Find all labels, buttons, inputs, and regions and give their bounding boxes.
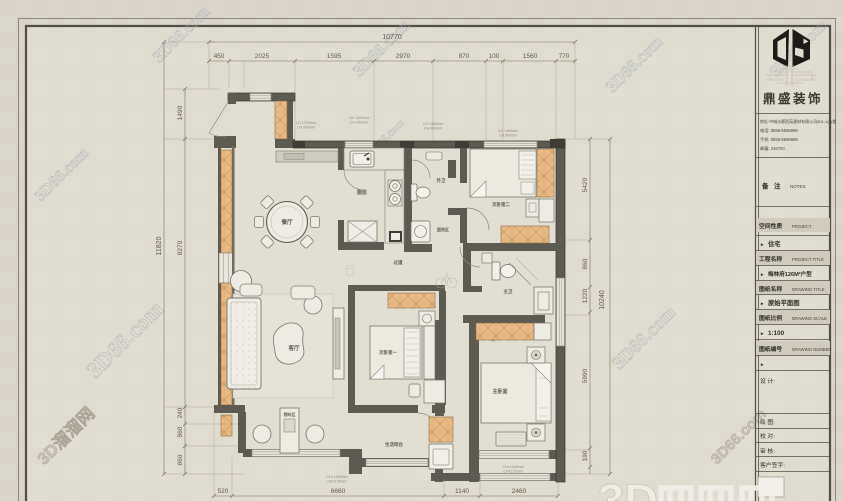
svg-text:空间性质: 空间性质 — [759, 222, 782, 230]
svg-text:主卧室: 主卧室 — [492, 388, 507, 395]
svg-text:►: ► — [760, 331, 764, 336]
svg-text:1560: 1560 — [523, 53, 538, 60]
svg-text:设 计:: 设 计: — [760, 377, 775, 385]
svg-text:CH 900mm: CH 900mm — [350, 121, 368, 125]
svg-text:次卧室一: 次卧室一 — [379, 349, 397, 356]
svg-text:CH=175mm: CH=175mm — [503, 470, 522, 474]
svg-text:450: 450 — [214, 53, 225, 60]
svg-text:3D: 3D — [598, 474, 658, 501]
svg-text:►: ► — [760, 301, 764, 306]
svg-text:240: 240 — [177, 407, 184, 418]
svg-text:CH 900mm: CH 900mm — [424, 127, 442, 131]
svg-text:NOTES: NOTES — [790, 184, 806, 189]
svg-text:手机: 0556-5556699: 手机: 0556-5556699 — [760, 136, 798, 143]
svg-text:CH 1400mm: CH 1400mm — [349, 116, 369, 120]
svg-text:860: 860 — [177, 454, 184, 465]
svg-text:外卫: 外卫 — [437, 177, 446, 184]
svg-text:审 核:: 审 核: — [760, 447, 775, 455]
svg-text:860: 860 — [582, 258, 589, 269]
svg-text:视听区: 视听区 — [284, 411, 296, 417]
svg-text:校 对:: 校 对: — [760, 432, 775, 440]
svg-text:CH=175mm: CH=175mm — [327, 480, 346, 484]
svg-text:PROJECT: PROJECT — [792, 224, 812, 229]
svg-text:11820: 11820 — [156, 236, 163, 255]
svg-text:2970: 2970 — [396, 53, 411, 60]
svg-text:原始平面图: 原始平面图 — [768, 298, 799, 307]
svg-text:►: ► — [760, 242, 764, 247]
svg-text:10240: 10240 — [599, 290, 606, 310]
svg-text:工程名称: 工程名称 — [759, 255, 782, 263]
svg-text:10770: 10770 — [382, 34, 402, 41]
svg-text:1:100: 1:100 — [768, 330, 785, 337]
svg-text:8270: 8270 — [177, 240, 184, 255]
svg-text:CH 900mm: CH 900mm — [297, 126, 315, 130]
svg-text:图纸名称: 图纸名称 — [759, 285, 782, 293]
svg-text:5420: 5420 — [582, 177, 589, 192]
svg-text:CH 1400mm: CH 1400mm — [498, 129, 518, 133]
svg-text:960: 960 — [177, 426, 184, 437]
svg-text:DRAWING SCALE: DRAWING SCALE — [792, 316, 827, 321]
svg-text:1490: 1490 — [177, 105, 184, 120]
svg-text:主卫: 主卫 — [504, 288, 513, 295]
svg-text:CH 900mm: CH 900mm — [499, 134, 517, 138]
svg-text:厨房: 厨房 — [357, 189, 367, 196]
svg-text:CH 1400mm: CH 1400mm — [423, 122, 443, 126]
svg-text:鼎盛装饰: 鼎盛装饰 — [763, 91, 823, 106]
svg-text:770: 770 — [559, 53, 570, 60]
svg-text:190: 190 — [582, 450, 589, 461]
svg-text:绘 图:: 绘 图: — [760, 418, 775, 426]
svg-text:餐厅: 餐厅 — [280, 218, 293, 226]
svg-text:梅林府126M²户型: 梅林府126M²户型 — [768, 270, 812, 278]
svg-text:盥洗区: 盥洗区 — [437, 226, 449, 232]
svg-text:5990: 5990 — [582, 368, 589, 383]
svg-text:过道: 过道 — [394, 259, 403, 266]
svg-text:电话: 0556-5556699: 电话: 0556-5556699 — [760, 127, 798, 134]
svg-text:PROJECT TITLE: PROJECT TITLE — [792, 257, 824, 262]
svg-text:DRAWING TITLE: DRAWING TITLE — [792, 287, 825, 292]
svg-text:次卧室二: 次卧室二 — [492, 201, 510, 208]
svg-text:图纸比例: 图纸比例 — [759, 314, 782, 322]
svg-text:LD 1700mm: LD 1700mm — [296, 121, 316, 125]
svg-text:客厅: 客厅 — [287, 344, 300, 352]
svg-text:520: 520 — [218, 488, 229, 495]
svg-text:地址:中城水郡西苑建材有限公司801-1(2)楼: 地址:中城水郡西苑建材有限公司801-1(2)楼 — [760, 118, 836, 124]
svg-text:CH=1440mm: CH=1440mm — [502, 465, 523, 469]
svg-text:2025: 2025 — [255, 53, 270, 60]
svg-text:1220: 1220 — [582, 288, 589, 303]
svg-text:住宅: 住宅 — [768, 239, 781, 248]
svg-text:图纸编号: 图纸编号 — [759, 345, 782, 353]
svg-text:870: 870 — [459, 53, 470, 60]
svg-text:6660: 6660 — [331, 488, 346, 495]
svg-text:100: 100 — [489, 53, 500, 60]
svg-text:►: ► — [760, 272, 764, 277]
svg-text:1595: 1595 — [327, 53, 342, 60]
svg-text:生活阳台: 生活阳台 — [385, 441, 403, 448]
svg-text:►: ► — [760, 362, 764, 367]
svg-text:CH=1440mm: CH=1440mm — [326, 475, 347, 479]
svg-text:客户签字:: 客户签字: — [760, 461, 785, 469]
svg-text:2460: 2460 — [512, 488, 527, 495]
svg-text:1140: 1140 — [455, 488, 469, 495]
svg-text:邮编: 246700: 邮编: 246700 — [760, 145, 785, 152]
svg-text:备: 备 — [761, 181, 769, 190]
svg-text:注: 注 — [774, 181, 781, 190]
svg-text:DRAWING NUMBER: DRAWING NUMBER — [792, 347, 831, 352]
